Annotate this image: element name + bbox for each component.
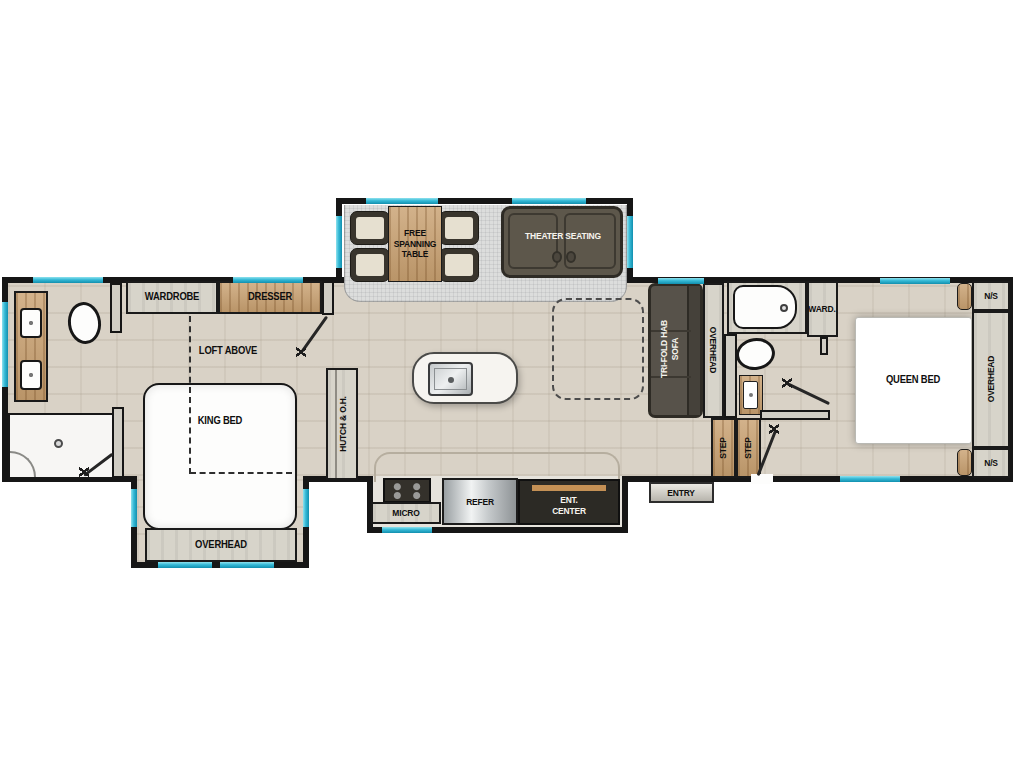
table-label: FREE SPANNING TABLE (394, 228, 437, 260)
window (233, 277, 303, 283)
window (303, 489, 309, 527)
bath-sink (20, 308, 42, 338)
floorplan-canvas: WARDROBE DRESSER LOFT ABOVE KING BED OVE… (0, 0, 1024, 768)
window (840, 476, 900, 482)
dinette-chair (350, 248, 390, 282)
king-bed (143, 383, 297, 530)
shower-bench-curve (10, 451, 36, 477)
wall-stub (820, 337, 828, 355)
step-label: STEP (743, 437, 754, 458)
rear-wardrobe-label: WARD. (808, 304, 835, 315)
island-sink (428, 362, 473, 396)
window (220, 562, 274, 568)
theater-seating (501, 206, 623, 278)
window (366, 198, 438, 204)
shower-drain (54, 439, 63, 448)
window (512, 198, 586, 204)
loft-label: LOFT ABOVE (199, 345, 257, 357)
queen-bed-label: QUEEN BED (886, 374, 940, 386)
dinette-chair (350, 211, 390, 245)
dresser-label: DRESSER (248, 291, 292, 303)
kitchen-island (412, 352, 518, 404)
sofa-overhead-label: OVERHEAD (708, 327, 719, 373)
refrigerator-label: REFER (466, 497, 494, 508)
bath-door-handle-icon (782, 378, 792, 388)
nightstand-label: N/S (984, 291, 998, 302)
window (880, 278, 950, 284)
entry-door-handle-icon (769, 424, 779, 434)
shower-door-handle-icon (79, 467, 89, 477)
range-stove (383, 478, 431, 503)
sofa-fold-footprint (552, 298, 644, 400)
nightstand-pad (957, 449, 972, 476)
bath-vanity (739, 375, 763, 415)
shower (8, 413, 114, 479)
window (131, 489, 137, 527)
window (627, 216, 633, 268)
loft-outline (189, 316, 191, 474)
window (158, 562, 212, 568)
loft-outline (190, 472, 292, 474)
entry-door-gap (751, 474, 773, 484)
dinette-chair (439, 248, 479, 282)
front-overhead-label: OVERHEAD (195, 539, 247, 551)
entertainment-center-label: ENT. CENTER (552, 495, 586, 516)
wall-stub (110, 283, 122, 333)
bath-sink (20, 360, 42, 390)
tri-fold-sofa-label: TRI-FOLD HAB SOFA (659, 320, 680, 378)
entry-label: ENTRY (667, 488, 694, 499)
theater-label: THEATER SEATING (525, 231, 601, 242)
window (2, 302, 8, 387)
dinette-chair (439, 211, 479, 245)
wardrobe-label: WARDROBE (145, 291, 199, 303)
nightstand-label: N/S (984, 458, 998, 469)
hutch-label: HUTCH & O.H. (338, 396, 349, 452)
bedroom-overhead-label: OVERHEAD (986, 356, 997, 402)
bedroom-door-handle-icon (296, 347, 306, 357)
nightstand-pad (957, 283, 972, 310)
window (33, 277, 103, 283)
step-label: STEP (718, 437, 729, 458)
bath-wall (760, 410, 830, 420)
window (658, 278, 704, 284)
bath-wall (724, 334, 737, 418)
wall-stub (112, 407, 124, 478)
king-bed-label: KING BED (198, 415, 242, 427)
window (382, 527, 432, 533)
window (336, 216, 342, 268)
entertainment-center-trim (532, 485, 606, 491)
microwave-label: MICRO (392, 508, 419, 519)
bathtub (733, 285, 797, 329)
wall-stub (322, 281, 334, 315)
